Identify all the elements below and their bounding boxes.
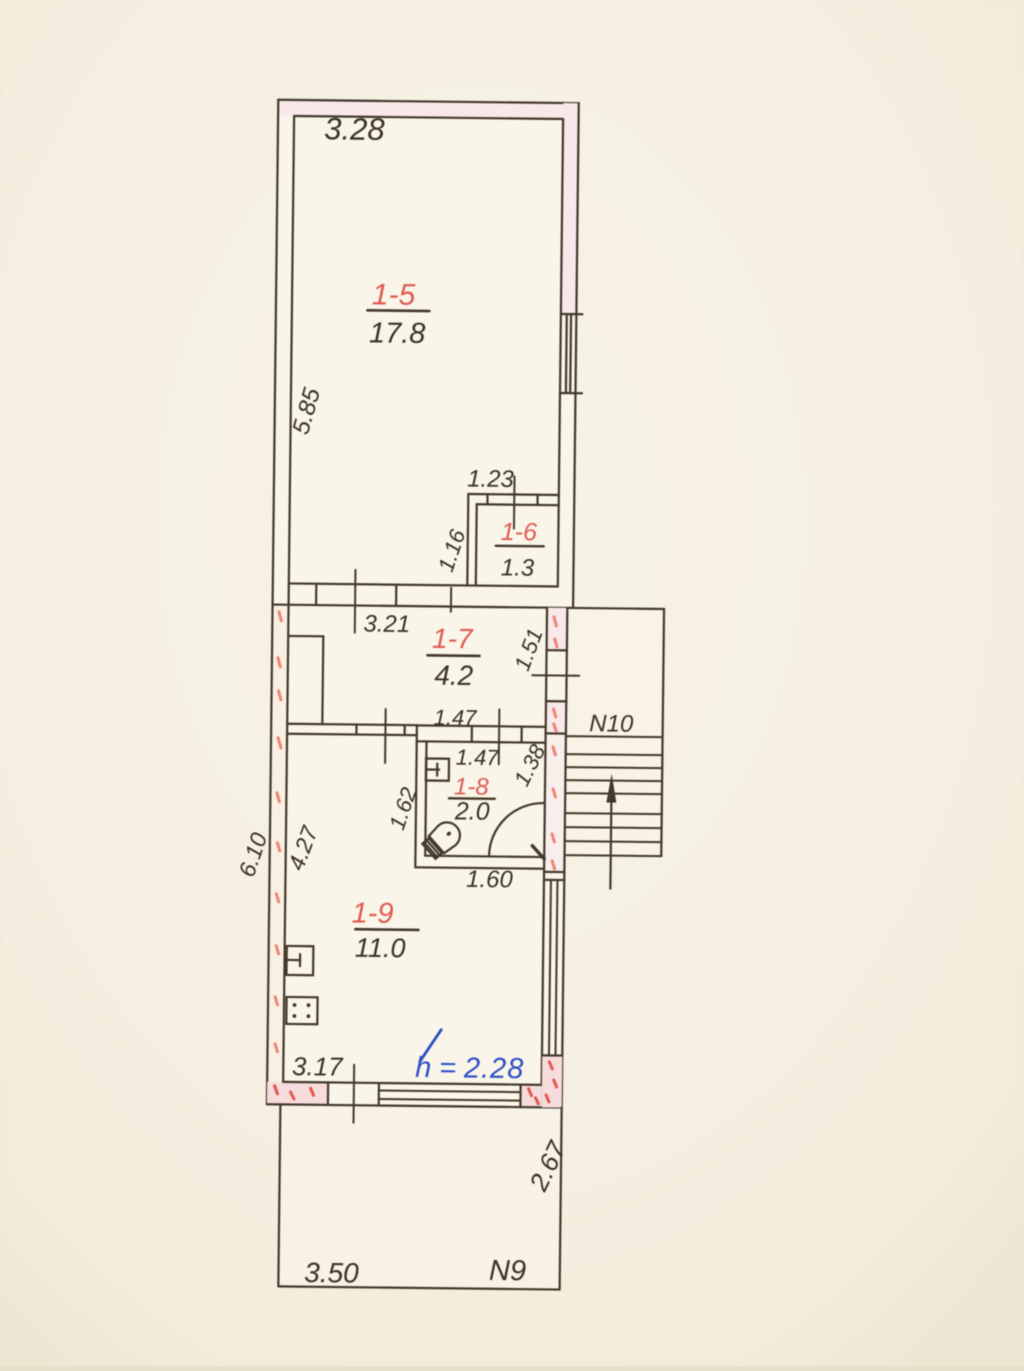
svg-text:N10: N10 [589, 710, 634, 738]
svg-text:1-5: 1-5 [372, 278, 416, 311]
svg-text:1.60: 1.60 [466, 866, 514, 894]
svg-text:1-6: 1-6 [501, 518, 538, 546]
svg-text:1.23: 1.23 [467, 465, 515, 493]
svg-text:17.8: 17.8 [369, 317, 426, 350]
svg-text:2.0: 2.0 [454, 797, 490, 825]
svg-text:N9: N9 [489, 1255, 526, 1287]
svg-text:4.2: 4.2 [434, 660, 474, 691]
svg-text:1-7: 1-7 [432, 623, 474, 654]
svg-text:1-9: 1-9 [351, 897, 393, 929]
svg-text:3.17: 3.17 [292, 1051, 344, 1082]
svg-text:11.0: 11.0 [355, 933, 406, 964]
svg-text:1.3: 1.3 [501, 554, 535, 581]
svg-text:3.21: 3.21 [363, 610, 410, 638]
svg-text:1.47: 1.47 [434, 705, 478, 730]
svg-text:3.50: 3.50 [304, 1257, 359, 1289]
svg-text:3.28: 3.28 [324, 111, 385, 147]
svg-text:1.47: 1.47 [456, 745, 500, 770]
svg-text:h = 2.28: h = 2.28 [415, 1052, 524, 1085]
